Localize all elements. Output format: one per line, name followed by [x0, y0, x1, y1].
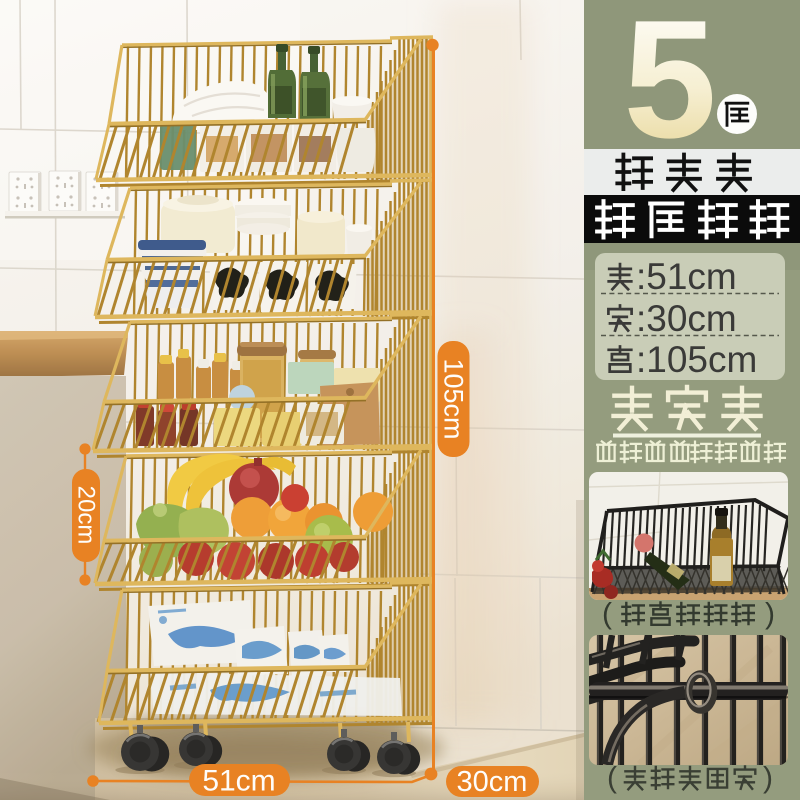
- svg-text:): ): [765, 598, 775, 631]
- svg-text:(: (: [602, 598, 612, 631]
- svg-text:5: 5: [623, 0, 716, 173]
- svg-text:): ): [763, 762, 773, 795]
- svg-text:(: (: [607, 762, 617, 795]
- svg-text::30cm: :30cm: [636, 298, 737, 339]
- svg-text::105cm: :105cm: [636, 339, 757, 380]
- svg-text::51cm: :51cm: [636, 256, 737, 297]
